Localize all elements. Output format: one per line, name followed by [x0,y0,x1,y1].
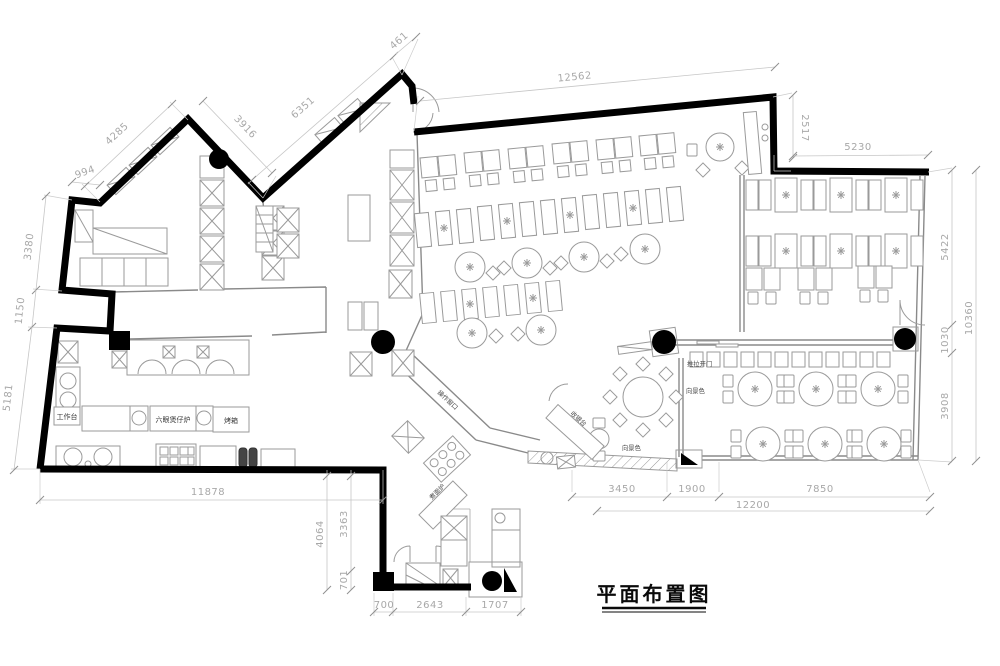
column-square [373,572,394,591]
dim-1707: 1707 [481,600,508,611]
round-table [852,427,911,461]
round-table [723,372,787,406]
dim-11878: 11878 [191,487,225,498]
dim-701: 701 [339,570,350,591]
sliding-door-leaf [716,344,738,347]
oven-label: 烤箱 [224,416,238,425]
column [894,328,916,350]
dim-4064: 4064 [315,520,326,547]
column-square [109,331,130,350]
dim-5181: 5181 [2,384,16,412]
dim-7850: 7850 [806,484,833,495]
small-table-row [746,266,892,304]
dim-2517: 2517 [799,114,810,141]
scenery-label-2: 向景色 [622,443,642,452]
round-table [784,372,848,406]
bottom-hall-furniture [676,352,911,468]
drawing-title: 平面布置图 [597,582,712,606]
dim-4285: 4285 [104,121,132,148]
dim-5422: 5422 [940,233,951,260]
dim-2643: 2643 [416,600,443,611]
column [209,149,229,169]
workbench-label: 工作台 [57,412,78,421]
round-table [731,427,795,461]
round-table [793,427,857,461]
booth-row-2 [746,234,923,268]
dim-6351: 6351 [289,95,317,121]
floor-plan-page: 煮面炉 [0,0,1000,666]
window-bench-row [690,352,890,367]
dim-1030: 1030 [940,326,951,353]
entry-door-leaf [504,568,517,592]
dim-5230: 5230 [844,142,871,153]
six-burner-stove-label: 六眼煲仔炉 [156,415,191,424]
door-arc-cashier [549,384,568,401]
floor-plan-drawing: 煮面炉 [0,0,1000,666]
dim-461: 461 [388,30,411,52]
dimension-lines: 11878 700 2643 1707 4064 3363 701 5422 1… [2,30,980,616]
door-arc-apex [413,88,439,132]
dim-3450: 3450 [608,484,635,495]
column [652,330,676,354]
dim-3908: 3908 [940,392,951,419]
dim-3380: 3380 [23,233,37,261]
vip-round-table [623,377,663,417]
right-hall-furniture [746,178,923,304]
drawing-title-block: 平面布置图 [597,582,712,612]
sliding-door-label: 推拉开门 [687,359,712,368]
dim-3363: 3363 [339,510,350,537]
scenery-label-1: 向景色 [686,386,706,395]
kitchen-furniture [54,340,295,469]
service-shelf [618,342,653,355]
column [482,571,502,591]
column [371,330,395,354]
vip-area-furniture: 收银台 [546,342,683,461]
dim-3916: 3916 [231,114,258,141]
booth-row-1 [746,178,923,212]
service-window-label: 操作窗口 [436,388,461,412]
dim-10360: 10360 [964,301,975,335]
dim-1900: 1900 [678,484,705,495]
dim-1150: 1150 [14,297,28,325]
dim-12562: 12562 [557,70,592,84]
round-table [846,372,908,406]
dim-12200: 12200 [736,500,770,511]
dim-700: 700 [374,600,395,611]
